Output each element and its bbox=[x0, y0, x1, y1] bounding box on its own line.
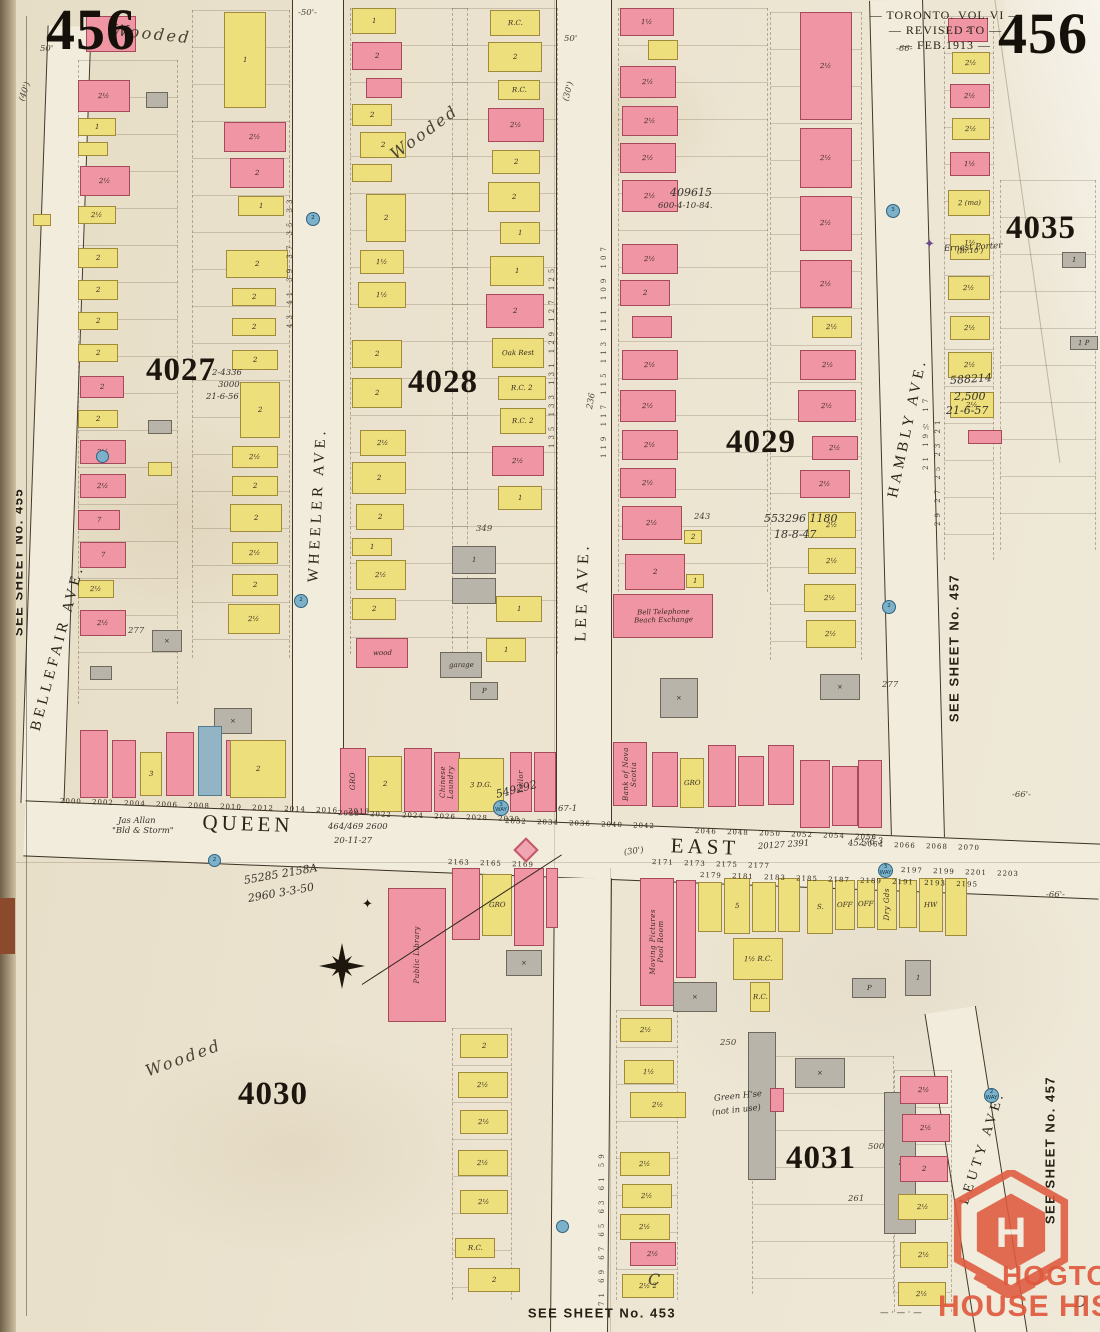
building: × bbox=[660, 678, 698, 718]
building bbox=[708, 745, 736, 807]
building bbox=[78, 142, 108, 156]
building: P bbox=[852, 978, 886, 998]
building-label: 2½ bbox=[644, 117, 655, 125]
building-label: 2½ bbox=[91, 211, 102, 219]
block-number: 4027 bbox=[146, 352, 216, 389]
building-label: × bbox=[676, 694, 682, 702]
map-annotation: 261 bbox=[848, 1194, 864, 1204]
building: 2 bbox=[625, 554, 685, 590]
building-label: P bbox=[482, 687, 487, 695]
building-label: 2½ bbox=[375, 571, 386, 579]
street-label: QUEEN bbox=[202, 810, 294, 838]
building bbox=[968, 430, 1002, 444]
building-label: 2½ bbox=[641, 1192, 652, 1200]
building-label: 2½ bbox=[825, 630, 836, 638]
building-label: 2½ bbox=[917, 1203, 928, 1211]
building: 2½ bbox=[620, 1018, 672, 1042]
building bbox=[676, 880, 696, 978]
building-label: 2½ bbox=[829, 444, 840, 452]
building-label: 2½ bbox=[640, 1026, 651, 1034]
building: 2½ bbox=[800, 196, 852, 251]
building-label: 1 bbox=[243, 56, 248, 64]
building-label: Bell Telephone Beach Exchange bbox=[633, 607, 692, 624]
building-label: 2 bbox=[492, 1276, 497, 1284]
building: 1 bbox=[238, 196, 284, 216]
building-label: 2½ bbox=[477, 1081, 488, 1089]
building-label: 2½ bbox=[249, 133, 260, 141]
building: 2 bbox=[80, 376, 124, 398]
building: R.C. bbox=[490, 10, 540, 36]
building: 2½ bbox=[630, 1242, 676, 1266]
building bbox=[858, 760, 882, 828]
building-label: 2 bbox=[252, 293, 257, 301]
building-label: 2½ bbox=[964, 361, 975, 369]
map-annotation: 21-6-56 bbox=[206, 392, 239, 402]
building: 2 bbox=[620, 280, 670, 306]
building-label: wood bbox=[372, 649, 391, 657]
building-label: 2 bbox=[378, 513, 383, 521]
building: 2 bbox=[488, 182, 540, 212]
map-annotation: 2,500 bbox=[954, 390, 986, 403]
building bbox=[166, 732, 194, 796]
building bbox=[738, 756, 764, 806]
building: Oak Rest bbox=[492, 338, 544, 368]
building-label: 2 bbox=[253, 356, 258, 364]
building-label: 2½ bbox=[918, 1251, 929, 1259]
map-annotation: 250 bbox=[720, 1038, 736, 1048]
building: 2½ bbox=[620, 143, 676, 173]
building: 1½ bbox=[950, 152, 990, 176]
building-label: Chinese Laundry bbox=[439, 753, 455, 811]
building-label: R.C. 2 bbox=[512, 417, 534, 425]
building-label: R.C. bbox=[508, 19, 523, 27]
building-label: 1 P bbox=[1078, 339, 1090, 347]
building: 1 bbox=[500, 222, 540, 244]
building-label: × bbox=[692, 993, 698, 1001]
map-annotation: 349 bbox=[476, 524, 492, 534]
building: 2½ bbox=[630, 1092, 686, 1118]
building: × bbox=[795, 1058, 845, 1088]
building bbox=[33, 214, 51, 226]
building: 2½ bbox=[622, 430, 678, 460]
building-label: 2 bbox=[384, 214, 389, 222]
building-label: 2 bbox=[375, 52, 380, 60]
building bbox=[198, 726, 222, 796]
building-label: Public Library bbox=[413, 926, 421, 984]
building: 2½ bbox=[224, 122, 286, 152]
building-label: 2 bbox=[256, 765, 261, 773]
building: R.C. 2 bbox=[498, 376, 546, 400]
building: 1 bbox=[78, 118, 116, 136]
building: 2 bbox=[230, 504, 282, 532]
building-label: 2 bbox=[691, 533, 696, 541]
building bbox=[546, 868, 558, 928]
building: 2½ bbox=[900, 1076, 948, 1104]
building: 2 bbox=[352, 42, 402, 70]
building-label: 2½ bbox=[639, 1160, 650, 1168]
building: 2½ bbox=[78, 206, 116, 224]
building: 2 bbox=[684, 530, 702, 544]
building: × bbox=[673, 982, 717, 1012]
book-spine-edge bbox=[0, 0, 16, 1332]
building bbox=[90, 666, 112, 680]
building: 2 bbox=[368, 756, 402, 812]
compass-rose-icon bbox=[318, 942, 366, 995]
building: 2½ bbox=[620, 1152, 670, 1176]
building: 2 bbox=[356, 504, 404, 530]
building bbox=[366, 78, 402, 98]
building: 2½ bbox=[78, 80, 130, 112]
index-tab bbox=[0, 898, 15, 954]
map-annotation: 18-8-47 bbox=[774, 528, 816, 541]
building bbox=[146, 92, 168, 108]
building-label: 2 bbox=[255, 260, 260, 268]
building: 2 bbox=[240, 382, 280, 438]
building-label: 1 bbox=[517, 605, 522, 613]
building-label: 1½ bbox=[641, 18, 652, 26]
hydrant-marker bbox=[96, 450, 109, 463]
lot-number-strip: 119 117 115 113 111 109 107 bbox=[600, 158, 608, 458]
building: 2½ bbox=[622, 506, 682, 540]
fire-insurance-map-sheet: 456 456 — TORONTO. VOL.VI — — REVISED TO… bbox=[0, 0, 1100, 1332]
building-label: 2½ bbox=[249, 453, 260, 461]
building-label: 2 bbox=[258, 406, 263, 414]
building: 2 bbox=[230, 740, 286, 798]
hydrant-marker: 2 bbox=[306, 212, 320, 226]
building: 2½ bbox=[492, 446, 544, 476]
map-annotation: Wooded bbox=[143, 1035, 224, 1080]
building: GRO bbox=[680, 758, 704, 808]
building: GRO bbox=[340, 748, 366, 814]
building-label: 2 (ma) bbox=[957, 199, 980, 207]
building: 2½ bbox=[622, 244, 678, 274]
block-number: 4029 bbox=[726, 424, 796, 461]
building-label: 2 bbox=[96, 349, 101, 357]
watermark-line1: HOGTOWN bbox=[1002, 1260, 1100, 1292]
building-label: 2½ bbox=[822, 361, 833, 369]
building-label: 2 bbox=[372, 605, 377, 613]
building: 1½ bbox=[360, 250, 404, 274]
building-label: 1 bbox=[515, 267, 520, 275]
building: 2½ bbox=[80, 610, 126, 636]
building: 2 bbox=[492, 150, 540, 174]
building: R.C. 2 bbox=[500, 408, 546, 434]
building-label: 2½ bbox=[644, 361, 655, 369]
street-label: EAST bbox=[670, 833, 739, 860]
building-label: 2 bbox=[96, 317, 101, 325]
building-label: 2½ bbox=[377, 439, 388, 447]
block-number: 4028 bbox=[408, 364, 478, 401]
building-label: 2½ bbox=[824, 594, 835, 602]
building-label: 2½ bbox=[642, 402, 653, 410]
building-label: × bbox=[817, 1069, 823, 1077]
building-label: 7 bbox=[101, 551, 106, 559]
map-annotation: 553296 1180 bbox=[764, 512, 837, 525]
building: × bbox=[820, 674, 860, 700]
building bbox=[452, 578, 496, 604]
building: 2½ bbox=[948, 276, 990, 300]
map-annotation: 2-4336 bbox=[212, 368, 242, 378]
building: 1 bbox=[452, 546, 496, 574]
building: 1 bbox=[224, 12, 266, 108]
lot-number-strip: 135 133 131 129 127 125 bbox=[548, 168, 556, 448]
building-label: R.C. 2 bbox=[511, 384, 533, 392]
building-label: 1 bbox=[472, 556, 477, 564]
building: Bank of Nova Scotia bbox=[613, 742, 647, 806]
building: wood bbox=[356, 638, 408, 668]
building: 2½ bbox=[232, 542, 278, 564]
building-label: 5 bbox=[735, 902, 740, 910]
building: 2½ bbox=[360, 430, 406, 456]
building: 2 bbox=[232, 288, 276, 306]
building: 1 P bbox=[1070, 336, 1098, 350]
building: 1½ bbox=[624, 1060, 674, 1084]
block-number: 4035 bbox=[1006, 210, 1076, 247]
building: R.C. bbox=[750, 982, 770, 1012]
building-label: 2½ bbox=[820, 62, 831, 70]
building: 1 bbox=[686, 574, 704, 588]
building-label: HW bbox=[924, 901, 937, 909]
building-label: × bbox=[837, 683, 843, 691]
building: 2 bbox=[900, 1156, 948, 1182]
building: R.C. bbox=[455, 1238, 495, 1258]
building: 2½ bbox=[806, 620, 856, 648]
building bbox=[899, 880, 917, 928]
building-label: 2 bbox=[253, 581, 258, 589]
watermark-line2: HOUSE HISTORIES bbox=[938, 1290, 1100, 1324]
building-label: 2 bbox=[96, 415, 101, 423]
lot-number-strip: 29 27 25 23 21 bbox=[934, 196, 942, 526]
building-label: 2½ bbox=[826, 323, 837, 331]
building bbox=[778, 878, 800, 932]
building-label: 1 bbox=[95, 123, 100, 131]
building-label: 2½ bbox=[644, 192, 655, 200]
building-label: 2½ bbox=[965, 125, 976, 133]
map-annotation: 277 bbox=[882, 680, 898, 690]
building: 2½ bbox=[488, 108, 544, 142]
building-label: S. bbox=[817, 903, 824, 911]
building-label: 2½ bbox=[512, 457, 523, 465]
building: Chinese Laundry bbox=[434, 752, 460, 812]
title-line: — FEB.1913 — bbox=[858, 38, 1033, 53]
building-label: 1 bbox=[259, 202, 264, 210]
sheet-reference: SEE SHEET No. 457 bbox=[947, 574, 962, 722]
building-label: 2½ bbox=[510, 121, 521, 129]
building: 2½ bbox=[228, 604, 280, 634]
building-label: 2½ bbox=[826, 557, 837, 565]
hydrant-marker: 3 WAY bbox=[878, 863, 893, 878]
building: 2½ bbox=[800, 470, 850, 498]
building-label: 2 bbox=[482, 1042, 487, 1050]
building-label: 2½ bbox=[97, 482, 108, 490]
building bbox=[352, 164, 392, 182]
building: 2 bbox=[232, 318, 276, 336]
building bbox=[632, 316, 672, 338]
building-label: 2 bbox=[513, 53, 518, 61]
building: 2 bbox=[78, 410, 118, 428]
building: S. bbox=[807, 880, 833, 934]
map-annotation: 243 bbox=[694, 512, 710, 522]
building-label: 2½ bbox=[478, 1198, 489, 1206]
building-label: 2½ bbox=[248, 615, 259, 623]
building-label: Oak Rest bbox=[502, 349, 534, 358]
building-label: Bank of Nova Scotia bbox=[622, 743, 638, 805]
building-label: 2½ bbox=[820, 154, 831, 162]
building-label: 2½ bbox=[963, 284, 974, 292]
building-label: 2½ bbox=[916, 1290, 927, 1298]
building-label: GRO bbox=[684, 779, 701, 787]
title-block: — TORONTO. VOL.VI — — REVISED TO — — FEB… bbox=[858, 8, 1033, 53]
building bbox=[452, 868, 480, 940]
wheeler-band bbox=[292, 0, 344, 812]
building-label: P bbox=[867, 984, 872, 992]
building: 1½ bbox=[358, 282, 406, 308]
building bbox=[648, 40, 678, 60]
building: 2½ bbox=[622, 350, 678, 380]
building-label: × bbox=[521, 959, 527, 967]
map-annotation: 50' bbox=[564, 34, 577, 44]
building: 2 bbox=[352, 104, 392, 126]
building: 1 bbox=[905, 960, 931, 996]
map-annotation: 409615 bbox=[670, 186, 712, 199]
building: 2½ bbox=[622, 106, 678, 136]
hydrant-marker: 3 bbox=[886, 204, 900, 218]
building: 2½ bbox=[952, 52, 990, 74]
building-label: × bbox=[164, 637, 170, 645]
building-label: R.C. bbox=[753, 993, 768, 1001]
building: 2 bbox=[486, 294, 544, 328]
building-label: OFF bbox=[858, 900, 874, 908]
building-label: 2½ bbox=[820, 219, 831, 227]
building: 1½ R.C. bbox=[733, 938, 783, 980]
building-label: 2 bbox=[375, 350, 380, 358]
building-label: 1½ bbox=[643, 1068, 654, 1076]
building: 2½ bbox=[458, 1072, 508, 1098]
building: × bbox=[152, 630, 182, 652]
building-label: 7 bbox=[97, 516, 102, 524]
building-label: 2½ bbox=[477, 1159, 488, 1167]
building-label: 2½ bbox=[97, 619, 108, 627]
building-label: 2½ bbox=[964, 324, 975, 332]
building bbox=[768, 745, 794, 805]
building: 2 bbox=[488, 42, 542, 72]
map-annotation: 277 bbox=[128, 626, 144, 636]
building bbox=[80, 730, 108, 798]
building-label: 2 bbox=[253, 482, 258, 490]
building-label: 2½ bbox=[639, 1223, 650, 1231]
map-annotation: C bbox=[648, 1270, 663, 1289]
hydrant-marker bbox=[556, 1220, 569, 1233]
building: R.C. bbox=[498, 80, 540, 100]
building-label: 2 bbox=[96, 286, 101, 294]
building-label: 1½ bbox=[376, 258, 387, 266]
building-label: 2 bbox=[377, 474, 382, 482]
building-label: 2½ bbox=[249, 549, 260, 557]
building-label: garage bbox=[449, 661, 474, 669]
building-label: OFF bbox=[837, 901, 853, 909]
street-label: LEE AVE. bbox=[572, 542, 593, 642]
map-annotation: -50'- bbox=[298, 8, 317, 18]
building-label: 1 bbox=[518, 494, 523, 502]
building-label: 1½ bbox=[964, 160, 975, 168]
building: Public Library bbox=[388, 888, 446, 1022]
title-line: — TORONTO. VOL.VI — bbox=[858, 8, 1033, 23]
building-label: 2 bbox=[375, 389, 380, 397]
building: 2½ bbox=[812, 316, 852, 338]
building: 2 bbox=[78, 248, 118, 268]
building: 2 bbox=[226, 250, 288, 278]
building-label: 2 bbox=[383, 780, 388, 788]
building-label: 2 bbox=[512, 193, 517, 201]
north-arrow-icon: ✦ bbox=[362, 896, 373, 912]
building-label: 2½ bbox=[642, 154, 653, 162]
map-annotation: Jas Allan bbox=[118, 816, 156, 826]
building: 2½ bbox=[460, 1190, 508, 1214]
map-annotation: -66'- bbox=[1046, 890, 1065, 900]
building: 1 bbox=[486, 638, 526, 662]
building-label: 2½ bbox=[918, 1086, 929, 1094]
building-label: × bbox=[230, 717, 236, 725]
svg-text:H: H bbox=[996, 1209, 1027, 1257]
building bbox=[514, 868, 544, 946]
building: 2 bbox=[352, 598, 396, 620]
building-label: R.C. bbox=[468, 1244, 483, 1252]
paper-seam bbox=[610, 868, 611, 1332]
building-label: 2½ bbox=[820, 280, 831, 288]
building: 2½ bbox=[900, 1242, 948, 1268]
building: 2½ bbox=[458, 1150, 508, 1176]
building: × bbox=[506, 950, 542, 976]
building: 2½ bbox=[902, 1114, 950, 1142]
building: GRO bbox=[482, 874, 512, 936]
building-label: 2½ bbox=[644, 441, 655, 449]
sheet-border-line bbox=[26, 16, 27, 1316]
building bbox=[148, 462, 172, 476]
building: 2 bbox=[366, 194, 406, 242]
building-label: 2½ bbox=[644, 255, 655, 263]
building: 1 bbox=[1062, 252, 1086, 268]
building bbox=[752, 882, 776, 932]
building: 2½ bbox=[804, 584, 856, 612]
building bbox=[698, 882, 722, 932]
building: 2 bbox=[352, 340, 402, 368]
building-label: 2½ bbox=[819, 480, 830, 488]
building-label: 2 bbox=[513, 307, 518, 315]
building-label: 2½ bbox=[642, 479, 653, 487]
lot-number-strip: 43 41 39 37 35 33 bbox=[286, 88, 294, 328]
building: 2 bbox=[352, 462, 406, 494]
building-label: 2 bbox=[254, 514, 259, 522]
map-annotation: -66'- bbox=[1012, 790, 1031, 800]
hydrant-marker: 2 bbox=[882, 600, 896, 614]
building: 2½ bbox=[950, 84, 990, 108]
building: 2½ bbox=[80, 166, 130, 196]
building: 2½ bbox=[620, 66, 676, 98]
building-label: 2½ bbox=[965, 59, 976, 67]
building bbox=[404, 748, 432, 812]
building: 2½ bbox=[80, 474, 126, 498]
building: 1 bbox=[498, 486, 542, 510]
building: 2½ bbox=[460, 1110, 508, 1134]
map-annotation: 3000 bbox=[218, 380, 240, 390]
building-label: 2 bbox=[381, 141, 386, 149]
hydrant-marker: 2 bbox=[294, 594, 308, 608]
building-label: 2 bbox=[96, 254, 101, 262]
building: 2 (ma) bbox=[948, 190, 990, 216]
map-annotation: 464/469 2600 bbox=[328, 822, 388, 832]
building-label: GRO bbox=[489, 901, 506, 909]
building: 2½ bbox=[620, 390, 676, 422]
